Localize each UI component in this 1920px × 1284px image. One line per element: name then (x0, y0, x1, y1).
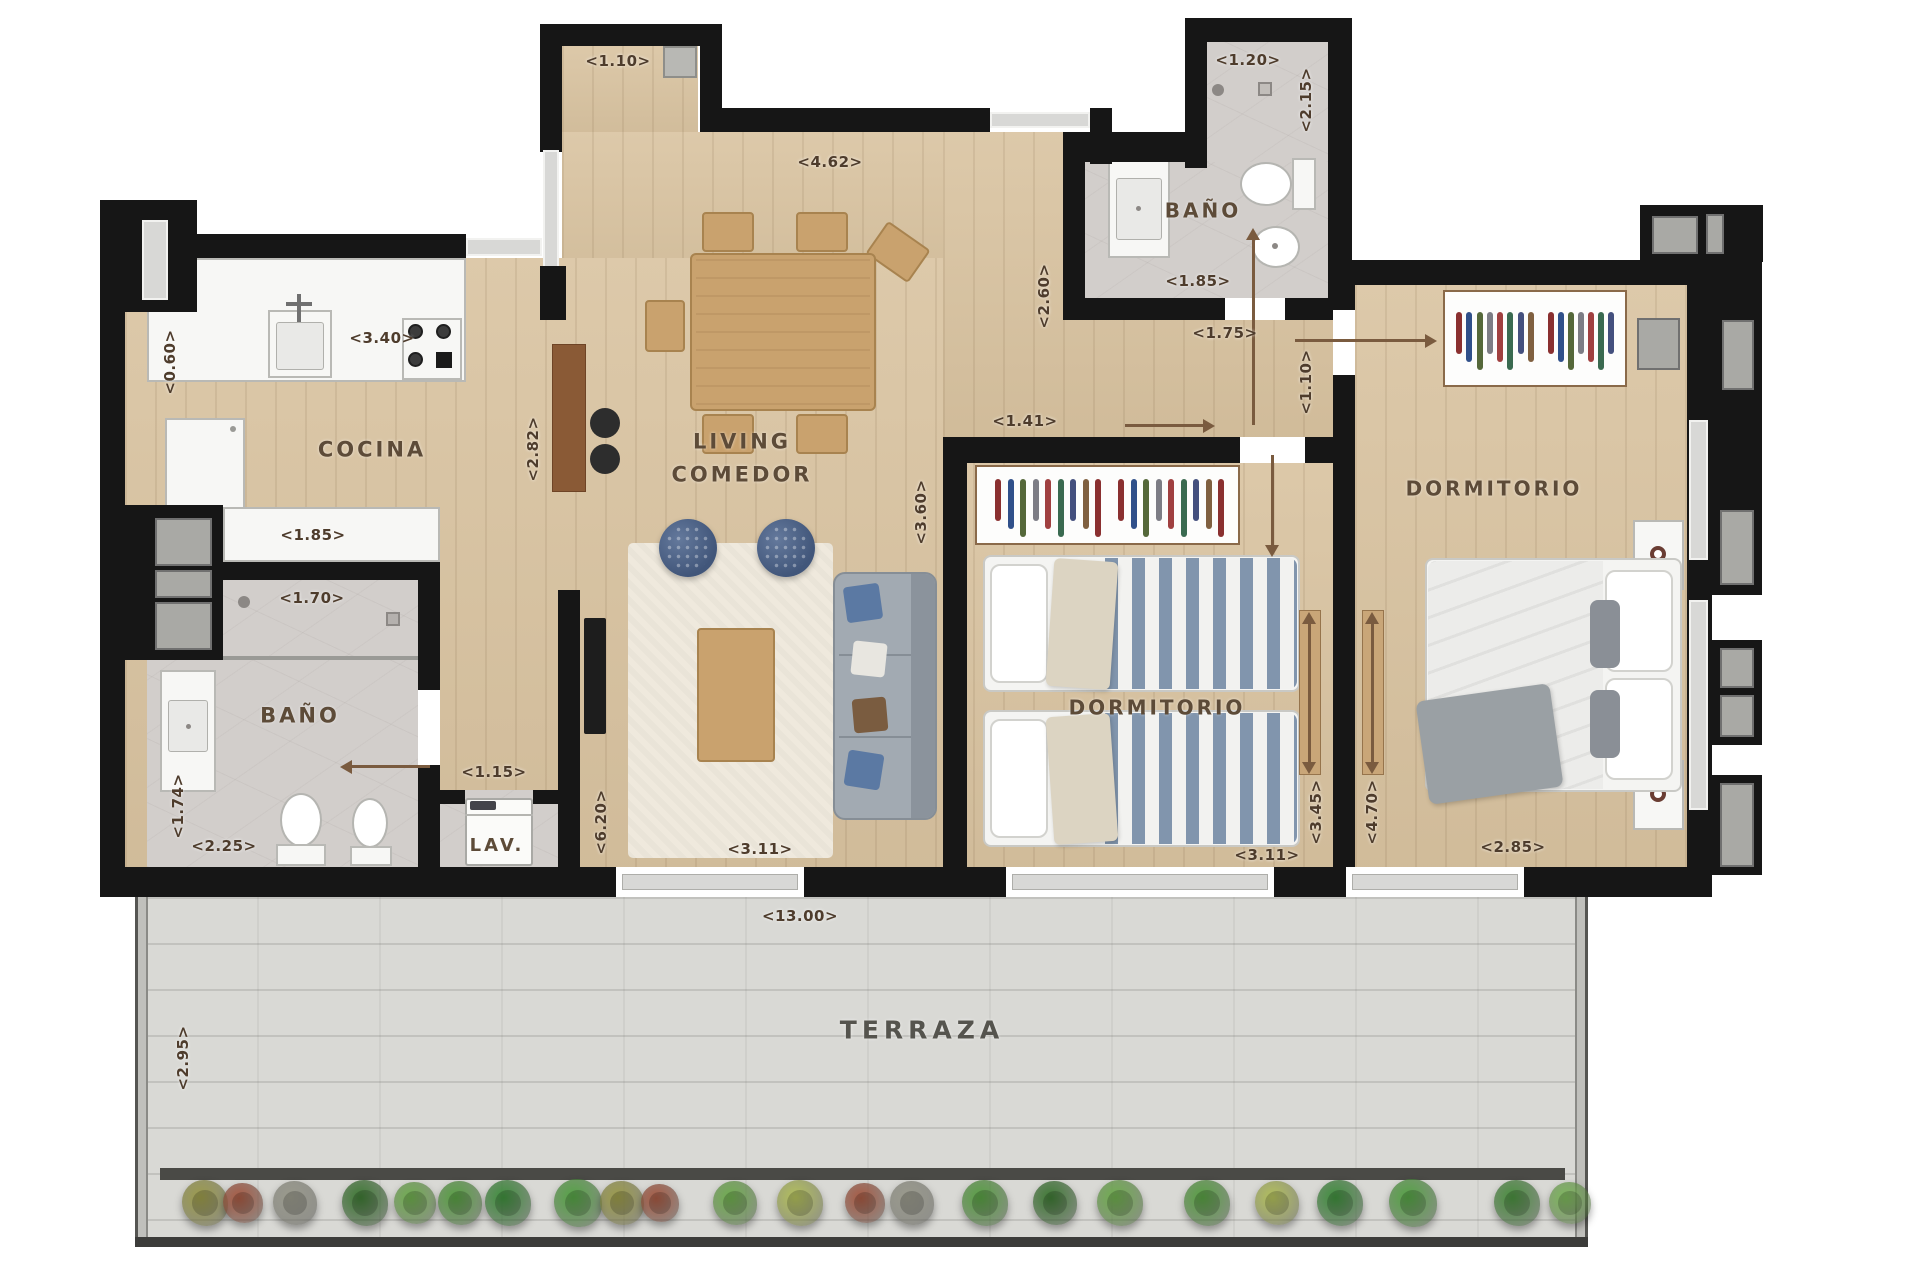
plant-icon (1033, 1181, 1077, 1225)
kitchen-faucet-cross-icon (286, 302, 312, 306)
hanging-clothes-icon (1568, 312, 1574, 370)
sofa-pillow (843, 583, 884, 624)
hanging-clothes-icon (1033, 479, 1039, 521)
door-arrow-bedroom-right (1295, 339, 1425, 342)
slide-arrow (1308, 622, 1311, 762)
sofa-pillow (850, 640, 887, 677)
duct-box (1637, 318, 1680, 370)
terrace-left-border (135, 897, 148, 1247)
dining-table-grain (696, 259, 870, 405)
sofa-pillow (852, 697, 889, 734)
planter-top-edge (160, 1168, 1565, 1180)
dimension-label: <1.74> (169, 773, 187, 838)
entry-door (663, 46, 697, 78)
bed-pillow (990, 719, 1048, 838)
plant-icon (273, 1181, 317, 1225)
stove-burner-icon (436, 324, 451, 339)
room-label-lavadero: LAV. (470, 832, 525, 860)
room-label-living-comedor: LIVING COMEDOR (672, 425, 813, 490)
hanging-clothes-icon (1070, 479, 1076, 521)
dimension-label: <3.40> (349, 329, 414, 347)
duct-box (155, 518, 212, 566)
hanging-clothes-icon (1058, 479, 1064, 537)
dimension-label: <1.70> (279, 589, 344, 607)
dimension-label: <2.25> (191, 837, 256, 855)
bath-top-drain-dot (1136, 206, 1141, 211)
plant-icon (1494, 1180, 1540, 1226)
sofa-backrest (911, 574, 935, 818)
hanging-clothes-icon (1181, 479, 1187, 537)
hanging-clothes-icon (1168, 479, 1174, 529)
plant-icon (1549, 1182, 1591, 1224)
bed-gray-throw (1415, 683, 1563, 805)
plant-icon (223, 1183, 263, 1223)
window-column (1652, 216, 1698, 254)
dimension-label: <3.60> (912, 479, 930, 544)
bed-cushion (1590, 690, 1620, 758)
hanging-clothes-icon (1588, 312, 1594, 362)
hanging-clothes-icon (1466, 312, 1472, 362)
plant-icon (342, 1180, 388, 1226)
hanging-clothes-icon (1156, 479, 1162, 521)
window-column (1720, 510, 1754, 585)
bed-cushion (1590, 600, 1620, 668)
pouf (757, 519, 815, 577)
hanging-clothes-icon (1131, 479, 1137, 529)
hanging-clothes-icon (1528, 312, 1534, 362)
dimension-label: <3.11> (1234, 846, 1299, 864)
dimension-label: <1.85> (280, 526, 345, 544)
dimension-label: <6.20> (592, 789, 610, 854)
dimension-label: <1.85> (1165, 272, 1230, 290)
hanging-clothes-icon (995, 479, 1001, 521)
shower-drain-top-icon (1258, 82, 1272, 96)
plant-icon (554, 1179, 602, 1227)
plant-icon (777, 1180, 823, 1226)
duct-box (155, 602, 212, 650)
bath-left-drain-dot (186, 724, 191, 729)
door-arrow-bedroom-middle (1271, 455, 1274, 545)
closet-middle-bedroom (975, 465, 1240, 545)
bed-throw (1046, 713, 1119, 845)
coffee-table (697, 628, 775, 762)
plant-icon (1389, 1179, 1437, 1227)
dimension-label: <1.20> (1215, 51, 1280, 69)
dimension-label: <1.10> (1297, 349, 1315, 414)
dimension-label: <1.10> (585, 52, 650, 70)
dimension-label: <4.62> (797, 153, 862, 171)
toilet-top-tank (1292, 158, 1316, 210)
hanging-clothes-icon (1456, 312, 1462, 354)
washing-machine-lid-line (465, 814, 533, 816)
stove-panel-icon (436, 352, 452, 368)
plant-icon (1255, 1181, 1299, 1225)
dimension-label: <2.85> (1480, 838, 1545, 856)
dimension-label: <2.82> (524, 416, 542, 481)
dimension-label: <2.15> (1297, 67, 1315, 132)
shower-drain-icon (386, 612, 400, 626)
plant-icon (182, 1180, 228, 1226)
bed-pillow (990, 564, 1048, 683)
hanging-clothes-icon (1578, 312, 1584, 354)
plant-icon (394, 1182, 436, 1224)
plant-icon (1317, 1180, 1363, 1226)
hanging-clothes-icon (1608, 312, 1614, 354)
hanging-clothes-icon (1598, 312, 1604, 370)
plant-icon (962, 1180, 1008, 1226)
bidet-top-dot (1272, 243, 1278, 249)
hanging-clothes-icon (1218, 479, 1224, 537)
single-bed-blanket (1105, 713, 1297, 844)
room-label-dormitorio-right: DORMITORIO (1406, 474, 1583, 505)
room-label-bano-top: BAÑO (1165, 196, 1241, 227)
hanging-clothes-icon (1518, 312, 1524, 354)
hanging-clothes-icon (1477, 312, 1483, 370)
hanging-clothes-icon (1548, 312, 1554, 354)
dimension-label: <1.41> (992, 412, 1057, 430)
plant-icon (485, 1180, 531, 1226)
window-column (1720, 648, 1754, 688)
hanging-clothes-icon (1206, 479, 1212, 529)
plant-icon (1184, 1180, 1230, 1226)
window-column (1722, 320, 1754, 390)
door-arrow-corridor (1125, 424, 1203, 427)
slide-arrow (1371, 622, 1374, 762)
dimension-label: <0.60> (161, 329, 179, 394)
bar-stool (590, 444, 620, 474)
room-label-cocina: COCINA (318, 434, 426, 467)
dimension-label: <3.11> (727, 840, 792, 858)
bed-throw (1046, 558, 1119, 690)
terrace-window (1012, 874, 1268, 890)
toilet-bowl (280, 793, 322, 847)
room-label-dormitorio-middle: DORMITORIO (1069, 693, 1246, 724)
dimension-label: <2.95> (174, 1025, 192, 1090)
dining-chair (796, 212, 848, 252)
hanging-clothes-icon (1095, 479, 1101, 537)
hanging-clothes-icon (1507, 312, 1513, 370)
plant-icon (890, 1181, 934, 1225)
pouf (659, 519, 717, 577)
hanging-clothes-icon (1008, 479, 1014, 529)
terrace-window (622, 874, 798, 890)
bar-stool (590, 408, 620, 438)
window-column (1706, 214, 1724, 254)
shower-head-top-icon (1212, 84, 1224, 96)
dimension-label: <1.75> (1192, 324, 1257, 342)
refrigerator (165, 418, 245, 512)
hanging-clothes-icon (1497, 312, 1503, 362)
door-arrow-bath-left (352, 765, 430, 768)
hanging-clothes-icon (1020, 479, 1026, 537)
plant-icon (845, 1183, 885, 1223)
room-label-terraza: TERRAZA (840, 1012, 1004, 1051)
dimension-label: <1.15> (461, 763, 526, 781)
window-column (1720, 695, 1754, 737)
washing-machine-controls-icon (470, 801, 496, 810)
refrigerator-handle-icon (230, 426, 236, 432)
bidet-bowl (352, 798, 388, 848)
dining-chair (645, 300, 685, 352)
hanging-clothes-icon (1487, 312, 1493, 354)
sofa-pillow (843, 749, 884, 790)
plant-icon (713, 1181, 757, 1225)
hanging-clothes-icon (1193, 479, 1199, 521)
floor-plan: COCINALIVING COMEDORBAÑOBAÑODORMITORIODO… (0, 0, 1920, 1284)
plant-icon (600, 1181, 644, 1225)
plant-icon (1097, 1180, 1143, 1226)
dining-chair (702, 212, 754, 252)
toilet-tank (276, 844, 326, 866)
kitchen-faucet-icon (297, 294, 301, 322)
stove-burner-icon (408, 352, 423, 367)
single-bed-blanket (1105, 558, 1297, 689)
hanging-clothes-icon (1118, 479, 1124, 521)
plant-icon (438, 1181, 482, 1225)
shower-head-icon (238, 596, 250, 608)
tv-unit (584, 618, 606, 734)
terrace-window (1352, 874, 1518, 890)
breakfast-bar (552, 344, 586, 492)
dimension-label: <3.45> (1307, 779, 1325, 844)
dimension-label: <13.00> (762, 907, 838, 925)
room-label-bano-left: BAÑO (260, 700, 340, 733)
hanging-clothes-icon (1083, 479, 1089, 529)
bidet-base (350, 846, 392, 866)
hanging-clothes-icon (1143, 479, 1149, 537)
terrace-bottom-border (135, 1237, 1588, 1247)
kitchen-sink-basin (276, 322, 324, 370)
duct-box (155, 570, 212, 598)
shower-glass-partition (223, 656, 418, 660)
dimension-label: <2.60> (1035, 263, 1053, 328)
plant-icon (641, 1184, 679, 1222)
toilet-top-bowl (1240, 162, 1292, 206)
window-column (1720, 783, 1754, 867)
hanging-clothes-icon (1045, 479, 1051, 529)
dimension-label: <4.70> (1363, 779, 1381, 844)
hanging-clothes-icon (1558, 312, 1564, 362)
